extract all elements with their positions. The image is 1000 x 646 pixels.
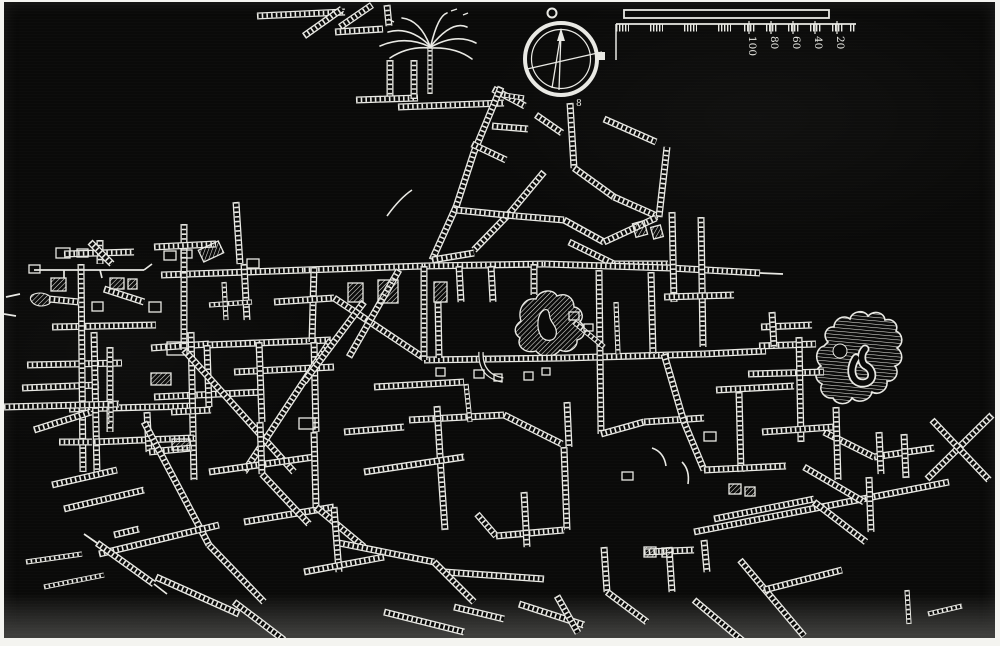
- chamber: [247, 259, 259, 268]
- passage-segment: [477, 514, 496, 536]
- passage-segment: [504, 415, 562, 444]
- passage-segment: [601, 422, 644, 434]
- passage-segment: [748, 372, 824, 374]
- passage-curve: [652, 448, 666, 466]
- passage-segment: [704, 540, 707, 572]
- west-cavern-blob: [30, 293, 51, 306]
- east-cavern-hole: [833, 344, 847, 358]
- passage-curve: [682, 462, 688, 484]
- scale-label-20: 20: [834, 36, 846, 49]
- passage-segment: [114, 529, 139, 535]
- chamber: [524, 372, 533, 380]
- passage-segment: [701, 217, 703, 347]
- passage-segment: [509, 172, 544, 214]
- palm-frond: [380, 41, 430, 47]
- scanned-page: 8 10080604020: [0, 0, 1000, 646]
- passage-segment: [869, 477, 871, 532]
- passage-segment: [524, 492, 527, 547]
- hatched-chamber: [51, 278, 66, 291]
- hatched-chamber: [729, 484, 741, 494]
- passage-segment: [209, 545, 264, 602]
- passage-segment: [434, 562, 474, 602]
- passage-segment: [740, 560, 804, 636]
- palm-tree-symbol: [380, 9, 476, 94]
- passage-segment: [599, 270, 601, 434]
- passage-segment: [99, 525, 219, 554]
- passage-segment: [907, 590, 909, 624]
- passage-segment: [644, 418, 704, 422]
- passage-segment: [22, 385, 99, 388]
- passage-segment: [49, 299, 79, 302]
- scale-outline-bar: [624, 10, 829, 18]
- passage-segment: [836, 407, 838, 480]
- hatched-chamber: [434, 282, 447, 302]
- passage-segment: [814, 502, 866, 542]
- passage-segment: [340, 5, 372, 27]
- passage-segment: [474, 87, 501, 152]
- passage-segment: [444, 572, 544, 579]
- passage-segment: [304, 266, 424, 270]
- chamber: [474, 370, 484, 378]
- passage-segment: [456, 210, 516, 216]
- scale-label-80: 80: [768, 36, 780, 49]
- hatched-chamber: [745, 487, 755, 496]
- passage-segment: [670, 268, 760, 273]
- passage-segment: [438, 302, 439, 358]
- palm-frond: [431, 13, 447, 45]
- passage-segment: [424, 358, 564, 360]
- passage-segment: [459, 266, 461, 302]
- passage-segment: [824, 432, 874, 457]
- passage-segment: [564, 447, 567, 530]
- passage-segment: [604, 547, 607, 592]
- passage-segment: [567, 402, 569, 447]
- passage-segment: [441, 472, 445, 530]
- passage-segment: [761, 325, 812, 327]
- passage-segment: [491, 266, 493, 302]
- passage-segment: [607, 592, 647, 622]
- passage-segment: [44, 575, 104, 587]
- passage-segment: [928, 606, 962, 614]
- hatched-chamber: [348, 283, 363, 302]
- passage-segment: [574, 168, 614, 197]
- passage-segment: [260, 422, 262, 474]
- passage-segment: [52, 470, 117, 485]
- passage-segment: [536, 115, 562, 133]
- passage-segment: [398, 103, 504, 107]
- passage-segment: [564, 354, 704, 358]
- passage-segment: [544, 264, 670, 268]
- passage-segment: [664, 295, 734, 297]
- passage-segment: [52, 325, 156, 327]
- chamber: [704, 432, 716, 441]
- passage-segment: [259, 342, 262, 422]
- map-plate: 8 10080604020: [4, 2, 995, 638]
- passage-segment: [704, 466, 786, 470]
- passage-segment: [209, 302, 252, 305]
- catacomb-passage-map: 8 10080604020: [4, 2, 995, 638]
- passage-segment: [879, 432, 881, 474]
- passage-segment: [651, 272, 653, 354]
- passage-segment: [759, 344, 816, 346]
- passage-segment: [762, 427, 834, 432]
- passage-segment: [516, 216, 564, 220]
- chamber: [149, 302, 161, 312]
- scale-bar: 10080604020: [616, 10, 856, 60]
- palm-frond: [390, 48, 430, 58]
- hatched-chamber: [110, 278, 124, 289]
- passage-segment: [496, 530, 564, 536]
- hatched-chamber: [662, 548, 672, 557]
- hatched-chamber: [151, 373, 171, 385]
- passage-segment: [4, 404, 119, 407]
- hatched-chamber: [644, 547, 656, 557]
- passage-segment: [672, 212, 674, 302]
- passage-segment: [772, 312, 774, 347]
- hatched-chamber: [172, 439, 190, 450]
- passage-segment: [569, 242, 614, 264]
- passage-segment: [314, 432, 316, 507]
- passage-segment: [504, 95, 524, 98]
- passage-segment: [335, 29, 383, 32]
- passage-segment: [234, 602, 284, 638]
- passage-segment: [454, 607, 504, 619]
- compass-hanging-ring: [548, 9, 557, 18]
- passage-segment: [151, 344, 209, 348]
- compass-glyph: 8: [576, 99, 582, 109]
- passage-segment: [156, 577, 239, 614]
- chamber: [29, 265, 40, 273]
- passage-segment: [716, 386, 794, 390]
- passage-curve: [387, 190, 412, 216]
- passage-segment: [570, 103, 574, 168]
- scale-label-100: 100: [746, 36, 758, 56]
- passage-segment: [26, 554, 82, 562]
- passage-segment: [664, 354, 684, 422]
- passage-segment: [356, 98, 418, 100]
- passage-segment: [364, 457, 464, 472]
- palm-frond: [431, 48, 472, 59]
- passage-segment: [312, 267, 314, 342]
- passage-segment: [614, 197, 659, 217]
- passage-segment: [904, 434, 906, 478]
- passage-segment: [387, 5, 389, 26]
- chamber: [622, 472, 633, 480]
- passage-segment: [659, 147, 667, 217]
- passage-segment: [236, 202, 240, 264]
- chamber: [542, 368, 550, 375]
- passage-segment: [739, 392, 741, 472]
- passage-segment: [274, 298, 334, 302]
- passage-segment: [456, 152, 474, 207]
- passage-segment: [684, 422, 704, 470]
- passage-segment: [474, 214, 509, 250]
- passage-segment: [616, 302, 618, 354]
- passage-segment: [64, 490, 144, 509]
- palm-frond: [431, 39, 476, 47]
- scale-label-60: 60: [790, 36, 802, 49]
- passage-segment: [304, 557, 384, 572]
- passage-segment: [492, 126, 528, 129]
- passage-segment: [344, 427, 404, 432]
- scale-label-40: 40: [812, 36, 824, 49]
- passage-segment: [224, 282, 226, 320]
- hatched-chamber: [651, 225, 664, 239]
- passage-segment: [244, 264, 247, 320]
- passage-segment: [384, 612, 464, 632]
- chamber: [164, 251, 176, 260]
- passage-segment: [374, 382, 464, 387]
- hatched-chamber: [378, 280, 398, 303]
- passage-segment: [171, 410, 211, 412]
- passage-segment: [604, 119, 656, 142]
- passage-segment: [104, 289, 144, 302]
- passage-segment: [564, 220, 604, 242]
- passage-segment: [424, 264, 544, 266]
- chamber: [92, 302, 103, 311]
- hatched-chamber: [128, 279, 137, 289]
- chamber: [436, 368, 445, 376]
- passage-segment: [764, 570, 842, 590]
- passage-segment: [604, 218, 656, 242]
- passage-segment: [432, 207, 456, 260]
- compass-rose: 8: [525, 9, 605, 110]
- passage-segment: [704, 351, 766, 354]
- passage-segment: [409, 415, 504, 420]
- passage-segment: [694, 600, 744, 638]
